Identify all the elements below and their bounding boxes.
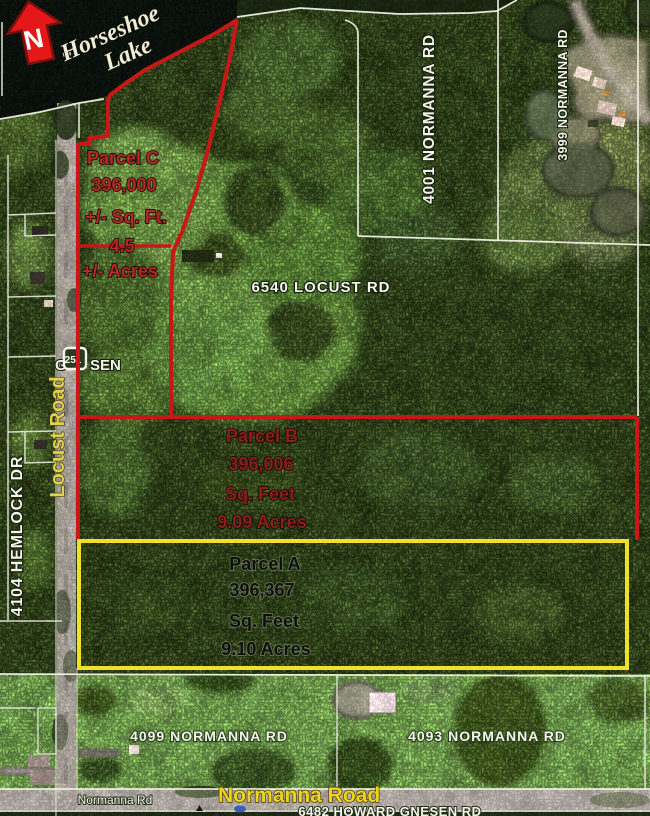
svg-text:Sq. Feet: Sq. Feet: [225, 484, 295, 504]
svg-text:6482 HOWARD GNESEN RD: 6482 HOWARD GNESEN RD: [298, 804, 481, 816]
svg-text:Parcel C: Parcel C: [87, 148, 159, 168]
svg-text:396,000: 396,000: [91, 175, 156, 195]
svg-text:4.5: 4.5: [109, 236, 134, 256]
svg-text:9.10 Acres: 9.10 Acres: [221, 639, 310, 659]
svg-text:+/- Sq. Ft.: +/- Sq. Ft.: [85, 207, 167, 227]
svg-text:6540 LOCUST RD: 6540 LOCUST RD: [251, 279, 390, 296]
svg-text:Sq. Feet: Sq. Feet: [229, 611, 299, 631]
svg-text:Locust Road: Locust Road: [47, 376, 69, 497]
svg-text:396,367: 396,367: [229, 580, 294, 600]
svg-text:4001 NORMANNA RD: 4001 NORMANNA RD: [421, 34, 438, 204]
svg-text:Normanna Rd: Normanna Rd: [78, 793, 153, 807]
svg-text:3999 NORMANNA RD: 3999 NORMANNA RD: [556, 29, 570, 160]
svg-text:Parcel B: Parcel B: [226, 426, 298, 446]
svg-text:4099 NORMANNA RD: 4099 NORMANNA RD: [130, 728, 288, 744]
svg-text:9.09 Acres: 9.09 Acres: [217, 512, 306, 532]
svg-text:4104 HEMLOCK DR: 4104 HEMLOCK DR: [9, 456, 26, 616]
svg-text:Parcel A: Parcel A: [229, 554, 300, 574]
svg-text:4093 NORMANNA RD: 4093 NORMANNA RD: [408, 728, 566, 744]
svg-text:SEN: SEN: [90, 357, 121, 374]
svg-text:396,006: 396,006: [228, 454, 293, 474]
svg-text:+/- Acres: +/- Acres: [82, 261, 158, 281]
